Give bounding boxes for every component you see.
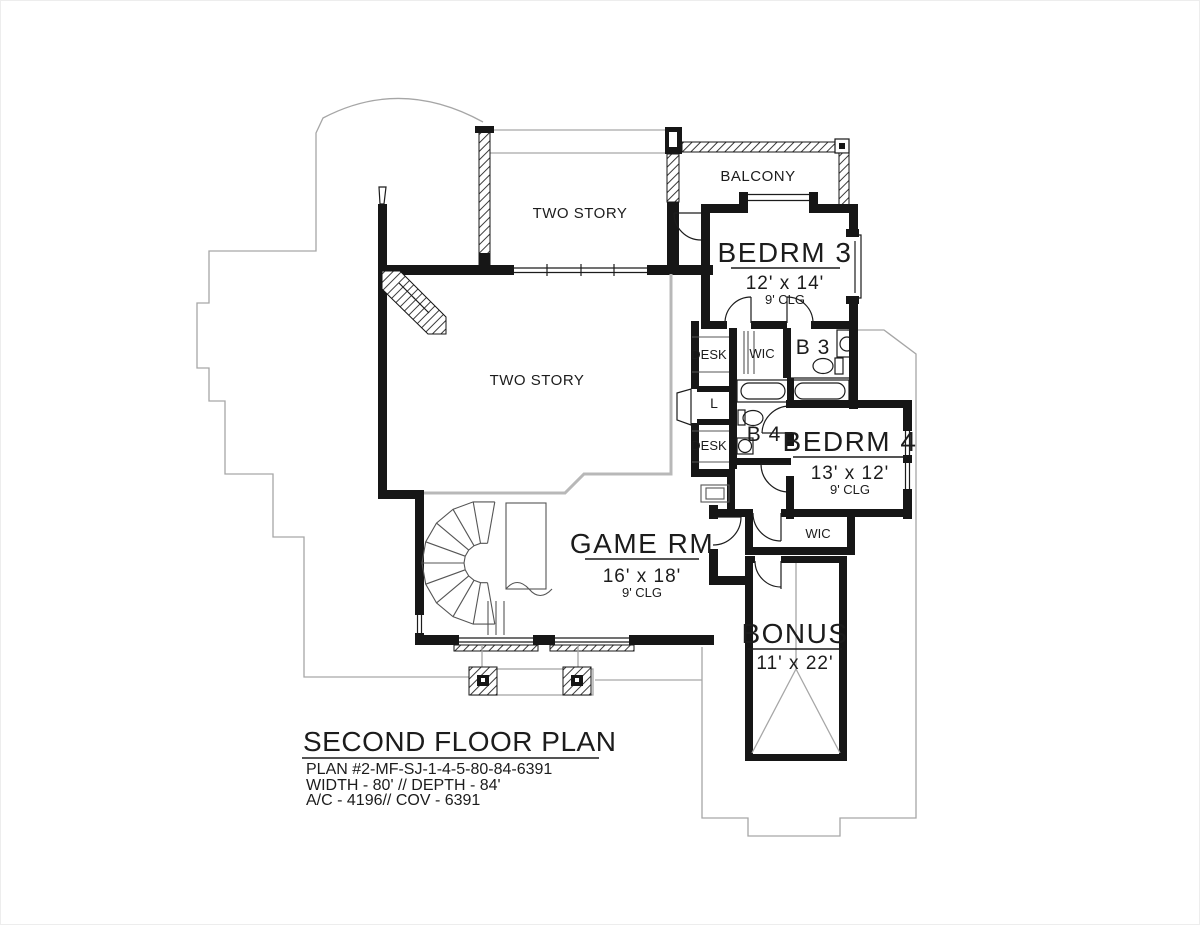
balcony-label: BALCONY bbox=[720, 168, 795, 185]
bedrm3-dims: 12' x 14' bbox=[746, 273, 825, 294]
bedrm4-room: BEDRM 4 13' x 12' 9' CLG bbox=[783, 400, 918, 519]
spiral-staircase bbox=[422, 502, 552, 635]
stair-opening bbox=[506, 503, 546, 589]
bedrm3-room: BEDRM 3 12' x 14' 9' CLG bbox=[674, 192, 861, 329]
upper-two-story-label: TWO STORY bbox=[533, 205, 628, 222]
game-room: GAME RM 16' x 18' 9' CLG bbox=[378, 490, 752, 651]
bedrm4-door-arc bbox=[761, 464, 789, 492]
linen-label: L bbox=[710, 395, 718, 411]
bath4-toilet bbox=[738, 410, 745, 425]
bath3-toilet bbox=[835, 358, 843, 374]
wic-lower-label: WIC bbox=[805, 526, 830, 541]
title-block: SECOND FLOOR PLAN PLAN #2-MF-SJ-1-4-5-80… bbox=[302, 726, 616, 809]
game-room-dims: 16' x 18' bbox=[603, 566, 682, 587]
bedrm3-ceiling: 9' CLG bbox=[765, 292, 805, 307]
wic-lower-door-arc bbox=[753, 513, 781, 541]
plan-title: SECOND FLOOR PLAN bbox=[303, 726, 616, 757]
plan-areas: A/C - 4196// COV - 6391 bbox=[306, 792, 480, 809]
plan-number: PLAN #2-MF-SJ-1-4-5-80-84-6391 bbox=[306, 761, 552, 778]
game-room-door-arc bbox=[713, 517, 741, 545]
game-room-ceiling: 9' CLG bbox=[622, 585, 662, 600]
bonus-room: BONUS 11' x 22' bbox=[741, 556, 848, 761]
bedrm4-ceiling: 9' CLG bbox=[830, 482, 870, 497]
wic-upper-label: WIC bbox=[749, 346, 774, 361]
attic-ladder bbox=[382, 271, 446, 334]
desk-lower-label: DESK bbox=[691, 438, 727, 453]
bedrm4-dims: 13' x 12' bbox=[811, 463, 890, 484]
linen-door-flap bbox=[677, 389, 691, 425]
wic-lower: WIC bbox=[709, 509, 912, 555]
bonus-label: BONUS bbox=[741, 618, 848, 649]
porch-columns bbox=[469, 645, 593, 695]
floor-plan-page: TWO STORY BALCONY BEDRM 3 12' x 14' 9' C… bbox=[0, 0, 1200, 925]
bedrm4-label: BEDRM 4 bbox=[783, 426, 918, 457]
balcony: BALCONY bbox=[682, 139, 849, 206]
bedrm3-label: BEDRM 3 bbox=[718, 237, 853, 268]
upper-two-story-room: TWO STORY bbox=[381, 126, 713, 276]
floor-plan-drawing: TWO STORY BALCONY BEDRM 3 12' x 14' 9' C… bbox=[1, 1, 1200, 925]
bonus-door-arc bbox=[755, 561, 781, 589]
main-two-story-area: TWO STORY bbox=[378, 187, 671, 499]
wic-upper-door-arc bbox=[725, 297, 751, 323]
bath3-label: B 3 bbox=[796, 336, 831, 359]
bath4-label: B 4 bbox=[747, 423, 782, 446]
game-room-label: GAME RM bbox=[570, 528, 714, 559]
bonus-dims: 11' x 22' bbox=[756, 653, 833, 674]
main-two-story-label: TWO STORY bbox=[490, 372, 585, 389]
desk-upper-label: DESK bbox=[691, 347, 727, 362]
